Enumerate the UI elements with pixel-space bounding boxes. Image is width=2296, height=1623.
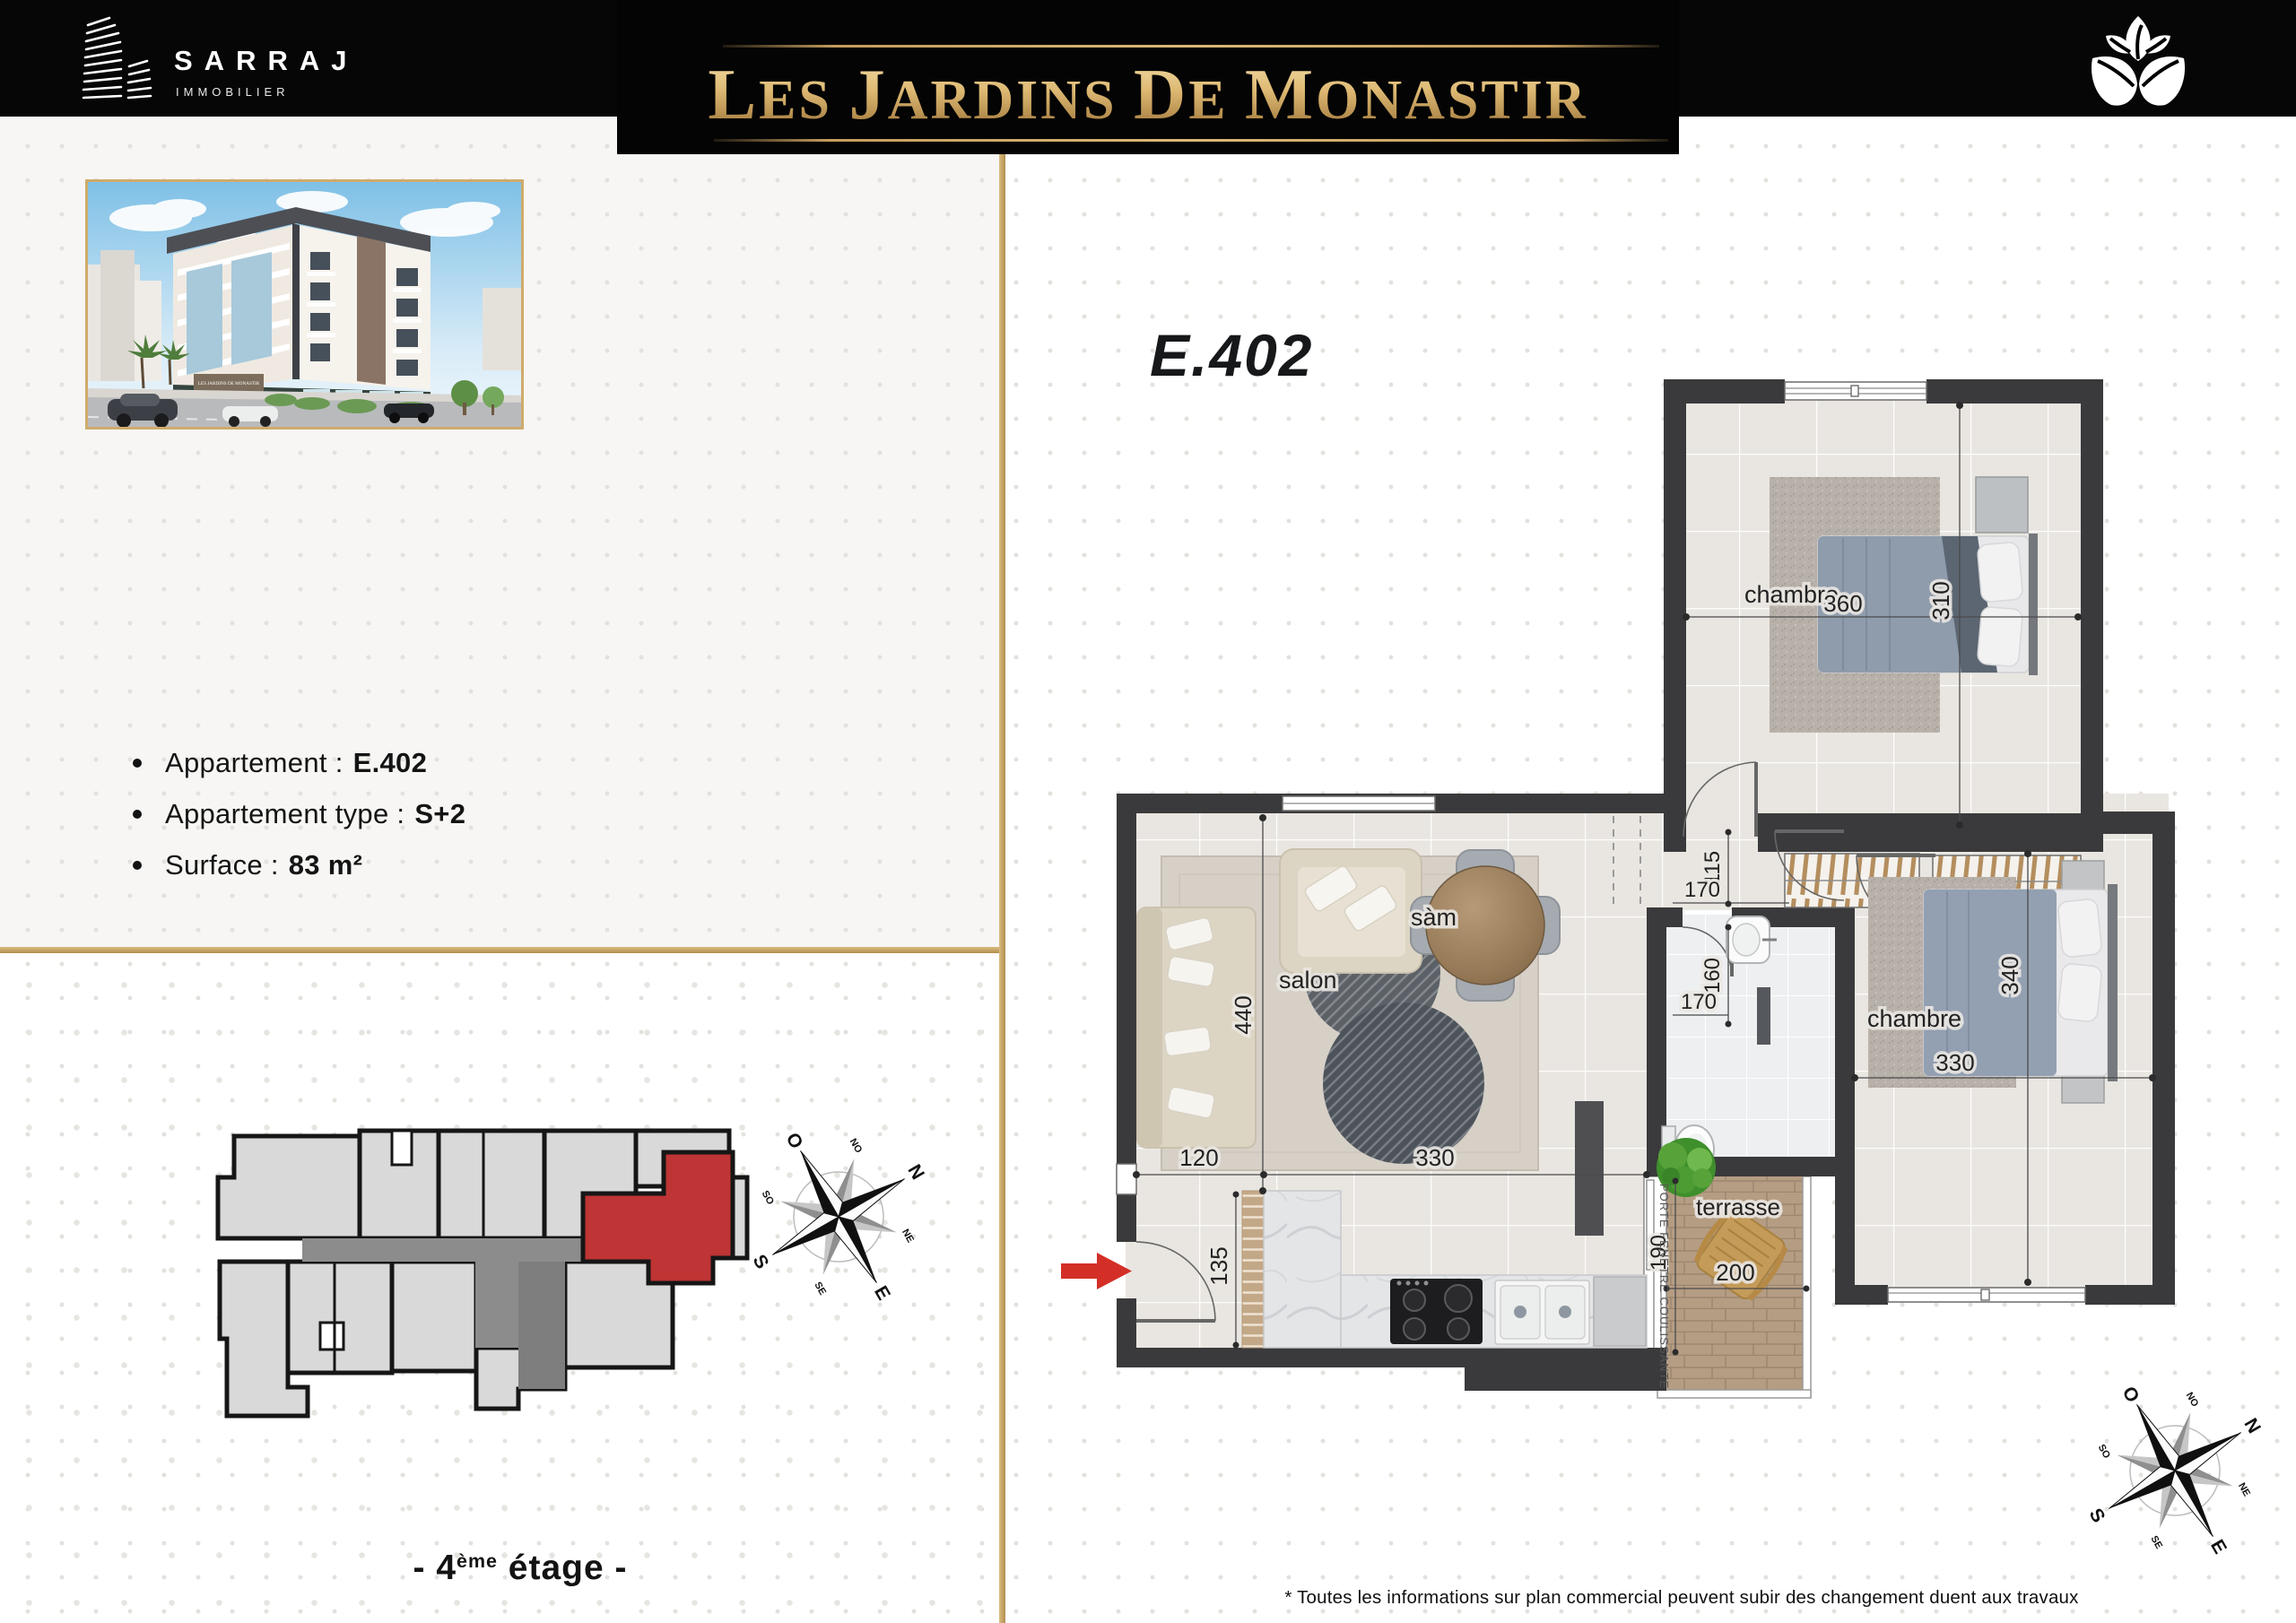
gold-vertical-divider: [999, 117, 1005, 1623]
detail-label: Appartement :: [165, 747, 344, 779]
compass-label-e: E: [870, 1282, 894, 1304]
sliding-door-label: PORTE FENETRE COULISSANTE: [1657, 1184, 1671, 1389]
dim-chambre1-height: 310: [1927, 581, 1954, 620]
bullet-dot: [133, 759, 142, 768]
compass-label-so: SO: [760, 1189, 777, 1207]
header-title-block: LES JARDINS DE MONASTIR: [617, 0, 1679, 154]
detail-row-type: Appartement type : S+2: [133, 788, 465, 839]
dim-entry-width: 120: [1179, 1144, 1218, 1171]
brand-subtitle: IMMOBILIER: [176, 85, 358, 99]
stove: [1390, 1279, 1483, 1344]
bedroom2-furniture: [1868, 861, 2118, 1103]
flower-logo-icon: [2085, 9, 2191, 109]
apartment-floor-plan: chambre 360 310 115 170 160 170 salon 44…: [1045, 377, 2179, 1403]
detail-label: Appartement type :: [165, 798, 404, 830]
building-icon: [79, 14, 161, 104]
room-label-salon: salon: [1279, 967, 1337, 994]
compass-label-no: NO: [2184, 1391, 2201, 1410]
project-title: LES JARDINS DE MONASTIR: [617, 54, 1679, 136]
room-label-sam: sàm: [1411, 904, 1457, 931]
compass-label-s: S: [749, 1251, 773, 1272]
compass-label-ne: NE: [900, 1228, 916, 1245]
floor-caption-prefix: - 4: [413, 1549, 457, 1587]
compass-label-o: O: [2118, 1384, 2144, 1407]
detail-label: Surface :: [165, 849, 279, 881]
building-rendering-image: LES JARDINS DE MONASTIR: [85, 179, 524, 430]
dim-bath-height: 160: [1700, 958, 1725, 994]
compass-label-e: E: [2206, 1536, 2231, 1558]
bullet-dot: [133, 810, 142, 819]
detail-row-surface: Surface : 83 m²: [133, 839, 465, 890]
floor-caption-suffix: étage -: [498, 1549, 628, 1587]
gold-rule-top: [723, 45, 1659, 48]
detail-value: E.402: [353, 747, 428, 779]
washbasin: [1726, 916, 1777, 963]
compass-label-so: SO: [2096, 1443, 2113, 1461]
sink: [1495, 1280, 1589, 1344]
dresser: [1976, 477, 2028, 533]
floor-caption: - 4ème étage -: [287, 1549, 753, 1588]
compass-rose: N S E O NE SE SO NO: [2072, 1367, 2278, 1574]
dim-bath-width-bottom: 170: [1681, 990, 1717, 1014]
brand-text: SARRAJ IMMOBILIER: [174, 45, 358, 99]
compass-label-se: SE: [2148, 1534, 2164, 1551]
disclaimer-text: * Toutes les informations sur plan comme…: [1233, 1587, 2130, 1609]
building-illustration: LES JARDINS DE MONASTIR: [88, 182, 521, 427]
fridge: [1594, 1277, 1646, 1346]
detail-value: 83 m²: [289, 849, 362, 881]
dim-kitchen-width: 330: [1415, 1144, 1454, 1171]
dim-chambre1-width: 360: [1823, 590, 1862, 617]
gold-rule-bottom: [714, 139, 1668, 142]
compass-label-se: SE: [812, 1280, 828, 1298]
entrance-sign-text: LES JARDINS DE MONASTIR: [198, 381, 260, 386]
detail-value: S+2: [414, 798, 465, 830]
detail-row-apartment: Appartement : E.402: [133, 737, 465, 788]
room-label-chambre2: chambre: [1867, 1005, 1961, 1032]
room-label-terrasse: terrasse: [1696, 1193, 1780, 1220]
dim-terrasse-width: 200: [1716, 1259, 1754, 1286]
floor-caption-sup: ème: [457, 1550, 498, 1572]
dim-salon-height: 440: [1230, 995, 1257, 1034]
shower-column: [1757, 987, 1770, 1045]
compass-label-n: N: [903, 1161, 928, 1184]
entry-arrow-icon: [1061, 1253, 1132, 1289]
brochure-page: LES JARDINS DE MONASTIR: [0, 0, 2296, 1623]
compass-label-s: S: [2085, 1505, 2109, 1526]
dim-bath-width-top: 170: [1684, 878, 1720, 902]
compass-label-ne: NE: [2236, 1481, 2252, 1498]
dim-chambre2-width: 330: [1935, 1049, 1974, 1076]
compass-label-n: N: [2239, 1415, 2265, 1437]
floor-locator-plan: [184, 1124, 758, 1424]
gold-horizontal-divider: [0, 947, 999, 953]
apartment-details-list: Appartement : E.402 Appartement type : S…: [133, 737, 465, 890]
brand-logo: SARRAJ IMMOBILIER: [79, 14, 358, 104]
dim-chambre2-height: 340: [1996, 956, 2023, 994]
bullet-dot: [133, 861, 142, 870]
compass-label-o: O: [782, 1130, 807, 1153]
tv-console: [1575, 1101, 1604, 1236]
compass-label-no: NO: [848, 1137, 865, 1156]
armchair: [1280, 849, 1422, 973]
brand-name: SARRAJ: [174, 45, 358, 77]
compass-rose: N S E O NE SE SO NO: [735, 1114, 942, 1320]
dim-kitchen-height: 135: [1205, 1246, 1232, 1285]
corridor: [302, 1238, 589, 1262]
